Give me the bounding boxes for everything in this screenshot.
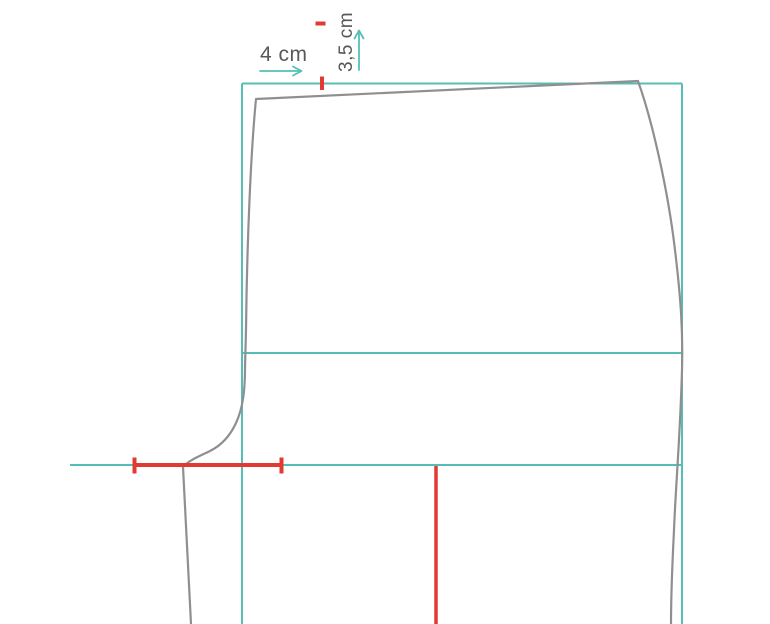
pattern-svg: 4 cm 3,5 cm [0, 0, 770, 624]
construction-lines [70, 84, 682, 624]
vertical-measure-label: 3,5 cm [336, 12, 357, 72]
sewing-pattern-diagram: 4 cm 3,5 cm [0, 0, 770, 624]
horizontal-measure-label: 4 cm [260, 43, 308, 66]
red-markings [135, 24, 437, 624]
arrow-right-icon [260, 67, 302, 76]
